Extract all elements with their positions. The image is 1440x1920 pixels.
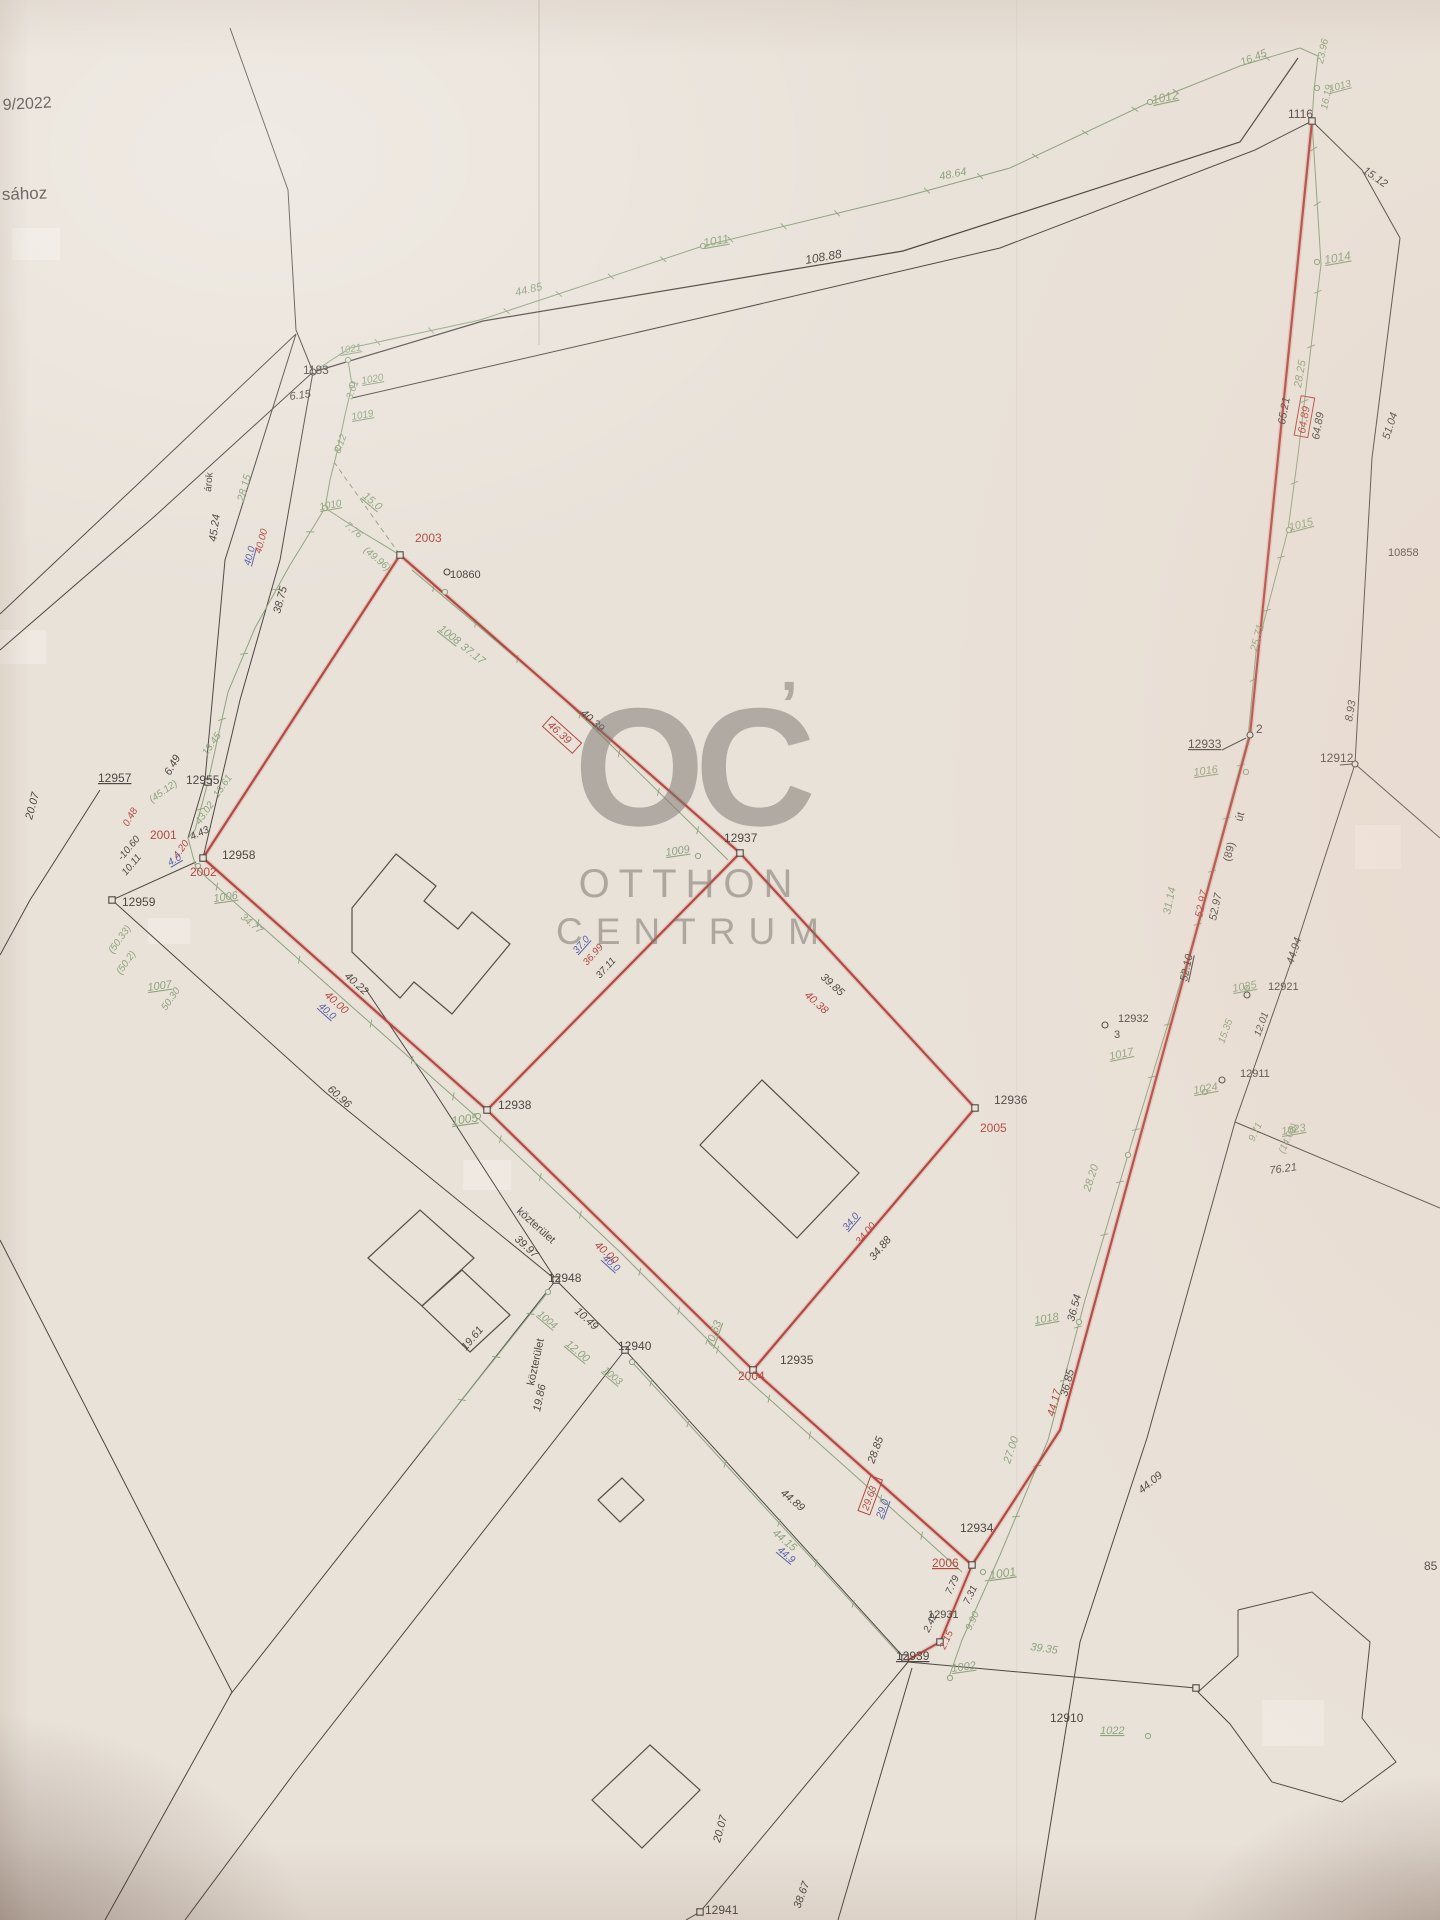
map-label: 3 [1114,1029,1120,1041]
map-label-group: 1022 [1100,1725,1124,1737]
map-label: 1009 [665,844,691,859]
survey-tick [240,653,248,654]
map-label-group: 44.89 [778,1487,807,1514]
map-label-group: 12.01 [1252,1011,1271,1038]
map-label-group: 12910 [1050,1711,1084,1725]
map-label-group: 46.39 [543,716,582,753]
map-label-group: 20.07 [23,790,42,822]
map-label-group: 0.48 [121,806,140,829]
survey-tick [724,1460,726,1468]
map-label-group: (45.12) [147,778,179,805]
map-label: 2003 [415,531,442,545]
map-label-group: 12948 [548,1271,582,1285]
map-label: 1020 [361,372,385,387]
map-label: 45.24 [207,513,223,542]
map-label: 20.07 [23,790,42,822]
map-label: 34.0 [841,1211,862,1233]
map-label-group: 1005 [450,1110,479,1128]
measured-line [188,508,325,838]
map-label-group: 2001 [150,828,177,842]
parcel-boundary-line [295,1350,625,1772]
survey-point-square [397,552,403,558]
map-label-group: 12911 [1240,1068,1270,1080]
map-label: 44.89 [778,1487,807,1514]
map-label-group: 1002 [951,1660,977,1675]
map-label: 37.17 [458,641,488,668]
map-label: 12.01 [1252,1011,1271,1038]
gps-point-circle [980,1569,985,1574]
map-label: 44.09 [1136,1469,1165,1496]
survey-point-square [737,850,743,856]
map-label: 0.48 [121,806,140,829]
map-label-group: 12921 [1268,981,1299,993]
map-label: 1008 [436,623,463,648]
map-label: 51.04 [1380,411,1400,441]
parcel-boundary-line [838,1668,912,1920]
parcel-boundary-line [1080,238,1400,1642]
building-outline [700,1080,859,1238]
map-label-group: 1015 [1288,516,1316,534]
map-label-group: 9/2022 [2,94,52,114]
map-label-group: 2006 [932,1556,959,1570]
map-label: 6.49 [162,753,183,778]
map-label: 52.97 [1207,891,1225,921]
map-label: 1011 [702,232,730,250]
parcel-boundary-line [1235,1122,1440,1208]
map-label: 28.15 [235,472,254,504]
map-label-group: 1003 [600,1365,624,1388]
map-label: 31.14 [1161,886,1178,915]
map-label: 8.12 [332,433,349,455]
map-label: 12955 [186,773,220,787]
redaction-box [463,1160,511,1190]
map-label: 1005 [450,1110,479,1128]
gps-point-circle [695,853,700,858]
map-label: 20.07 [711,1813,730,1845]
survey-tick [527,1313,535,1314]
map-label: 36.54 [1065,1293,1084,1323]
map-label: 12921 [1268,981,1299,993]
parcel-boundary-line [105,1692,232,1920]
gps-point-circle [947,1675,952,1680]
map-label-group: 38.75 [271,584,290,615]
map-label: 2001 [150,828,177,842]
map-label-group: (89) [1221,841,1238,863]
map-label: 2004 [738,1369,765,1383]
redaction-box [12,228,60,260]
map-label: 2005 [980,1121,1007,1135]
map-label: 12957 [98,771,132,785]
map-label: 1014 [1323,248,1352,266]
map-label: (45.12) [147,778,179,805]
map-label: 8.93 [1343,698,1359,722]
map-label-group: 1017 [1108,1046,1135,1063]
map-label-group: 2003 [415,531,442,545]
survey-tick [678,1307,680,1315]
parcel-boundary-line [185,1772,295,1920]
map-label-group: (50.2) [114,949,138,977]
map-label: 12910 [1050,1711,1084,1725]
map-label: 40.00 [253,527,270,554]
map-label: 27.00 [1001,1434,1022,1466]
map-label: 12934 [960,1521,994,1535]
map-label-group: 1009 [665,844,691,859]
map-label: 12935 [780,1353,814,1367]
survey-tick [650,1379,652,1387]
map-label-group: 29.0 [874,1498,891,1521]
map-label-group: 27.00 [1001,1434,1022,1466]
map-label-group: 1016 [1193,764,1220,779]
map-label-group: 4.43 [189,824,212,842]
map-label-group: 19.61 [459,1324,486,1353]
map-label-group: 40.00 [253,527,270,554]
map-label: 13.45 [200,731,224,758]
survey-point-square [972,1105,978,1111]
map-label: 12958 [222,848,256,862]
map-label: 34.88 [867,1233,894,1262]
map-label: 12936 [994,1093,1028,1107]
map-label: 64.89 [1310,411,1327,440]
map-label: 1025 [1231,979,1258,995]
map-label: 19.61 [459,1324,486,1353]
parcel-boundary-line [365,988,556,1280]
map-label: út [1233,811,1247,823]
map-label-group: 34.88 [867,1233,894,1262]
parcel-boundary-line [313,58,1298,372]
map-label-group: 51.04 [1380,411,1400,441]
map-label-group: 34.0 [841,1211,862,1233]
map-label-group: 1021 [339,342,363,357]
survey-point-square [969,1562,975,1568]
map-label-group: 1183 [303,363,329,377]
map-label: 60.96 [325,1083,354,1111]
map-label-group: 12934 [960,1521,994,1535]
redaction-box [1355,825,1401,869]
map-label: 108.88 [804,247,843,267]
map-label: 10858 [1388,547,1419,559]
map-label-group: 39.35 [1030,1641,1060,1657]
map-label-group: 64.89 [1310,411,1327,440]
map-label-group: 28.20 [1081,1162,1102,1194]
map-label: 12948 [548,1271,582,1285]
map-label-group: 1020 [361,372,385,387]
survey-point-square [697,1909,703,1915]
map-label: 12911 [1240,1068,1270,1080]
map-label-group: 12941 [705,1903,739,1917]
map-label-group: 1025 [1231,979,1258,995]
map-label-group: 16.19 [1319,83,1335,110]
map-label: 1017 [1108,1046,1135,1063]
map-label-group: 44.17 [1045,1387,1064,1418]
map-label: 1019 [351,408,375,423]
map-label: 2 [1256,722,1263,736]
map-label: 10860 [450,569,481,581]
map-label-group: 28.85 [865,1434,886,1466]
survey-point-square [109,897,115,903]
map-label-group: út [1233,811,1247,823]
map-label: 15.12 [1360,165,1389,191]
map-label: 1001 [988,1564,1016,1582]
map-label: 1116 [1288,107,1313,121]
survey-tick [977,173,983,179]
map-label-group: 6.15 [289,388,313,403]
survey-tick [492,1356,500,1357]
survey-tick [660,257,666,262]
map-label: 34.77 [238,912,265,937]
survey-point-square [200,855,206,861]
map-label-group: 8.93 [1343,698,1359,722]
map-label-group: 44.09 [1136,1469,1165,1496]
map-label-group: 108.88 [804,247,843,267]
parcel-boundary-line [0,790,100,955]
map-label-group: 12940 [618,1339,652,1353]
map-label-group: 1014 [1323,248,1352,266]
map-label-group: 12959 [122,895,156,909]
parcel-boundary-line [1222,738,1246,750]
map-label-group: 12939 [896,1649,930,1663]
measured-line [412,570,728,860]
map-label-group: 10858 [1388,547,1419,559]
map-label: 28.85 [865,1434,886,1466]
map-label-group: 31.14 [1161,886,1178,915]
subject-parcel-halo [400,555,975,1108]
survey-tick [639,1268,641,1276]
map-label: 38.67 [792,1879,813,1910]
subject-parcel-halo [972,121,1312,1565]
map-label-group: 1018 [1033,1311,1060,1327]
survey-tick [458,1399,466,1400]
map-label: (49.96) [361,545,392,574]
subject-parcel-line [400,555,975,1108]
survey-tick [717,1346,719,1354]
map-label: 44.94 [1284,936,1304,966]
map-label: 1018 [1033,1311,1060,1327]
map-label-group: 2002 [190,865,217,879]
map-label: 12938 [498,1098,532,1112]
map-label: 9.71 [1247,1121,1265,1143]
parcel-boundary-line [1035,1642,1080,1920]
subject-parcel-line [972,121,1312,1565]
subject-parcel-line [487,853,740,1110]
map-label: 85 [1424,1559,1438,1573]
survey-point-circle [1102,1022,1108,1028]
parcel-boundary-line [230,28,313,372]
map-label-group: 12.00 [563,1338,592,1365]
map-label: sához [1,183,47,204]
map-label-group: 1008 [436,623,463,648]
map-label: 29.0 [874,1498,891,1521]
map-label-group: 12912 [1320,751,1354,765]
map-label-group: árok [203,471,216,492]
map-label: 12941 [705,1903,739,1917]
map-label: árok [203,471,216,492]
redaction-box [148,918,190,944]
map-label-group: 15.35 [1216,1017,1235,1045]
map-label: 76.21 [1269,1161,1298,1177]
survey-point-circle [1219,1077,1225,1083]
map-label-group: 39.85 [818,971,847,999]
survey-tick [504,309,510,314]
map-label: 40.38 [802,989,831,1017]
map-label-group: 3 [1114,1029,1120,1041]
map-label: 52.10 [1178,952,1196,982]
map-label: 12932 [1118,1013,1149,1025]
map-label-group: sához [1,183,47,204]
map-label: 2002 [190,865,217,879]
map-label-group: 52.10 [1178,952,1196,982]
map-label-group: 3.01 [344,379,361,401]
map-label-group: 65.21 [1276,396,1293,425]
map-label: 2.15 [937,1629,956,1653]
map-label: közterület [525,1337,547,1386]
map-label-group: 12932 [1118,1013,1149,1025]
building-outline [352,854,510,1014]
map-label-group: 10.49 [572,1305,600,1332]
map-label-group: 1024 [1192,1081,1218,1097]
building-outline [592,1745,700,1848]
map-label: 7.76 [342,520,364,541]
map-label: 1022 [1100,1725,1124,1737]
map-label: 1015 [1288,516,1316,534]
map-label-group: 36.54 [1065,1293,1084,1323]
map-label-group: 2.15 [937,1629,956,1653]
map-label-group: 38.67 [792,1879,813,1910]
map-label: 1024 [1192,1081,1218,1097]
map-label: 65.21 [1276,396,1293,425]
map-label-group: 8.12 [332,433,349,455]
map-label-group: 10860 [450,569,481,581]
redaction-box [1262,1700,1324,1746]
map-label: 12937 [724,831,758,845]
building-outline [368,1210,474,1306]
map-label: 39.35 [1030,1641,1060,1657]
map-label: 1021 [339,342,363,357]
gps-point-circle [1125,1152,1130,1157]
survey-tick [608,274,614,279]
map-label: 12912 [1320,751,1354,765]
map-label: 1002 [951,1660,977,1675]
survey-point-square [484,1107,490,1113]
map-label-group: 1019 [351,408,375,423]
gps-point-circle [442,589,447,594]
redaction-box [0,630,46,664]
map-label-group: 15.0 [360,490,385,514]
map-label: 16.45 [1239,47,1270,69]
map-label-group: 1001 [988,1564,1016,1582]
map-label: 23.96 [1315,37,1331,65]
map-label-group: 2004 [738,1369,765,1383]
survey-point-square [1193,1685,1199,1691]
map-label-group: közterület [525,1337,547,1386]
map-label: 12933 [1188,737,1222,751]
map-label: 3.01 [344,379,361,401]
map-label: 1183 [303,363,329,377]
map-label: (50.2) [114,949,138,977]
gps-point-circle [629,1359,634,1364]
map-label-group: 40.38 [802,989,831,1017]
map-label: 12939 [896,1649,930,1663]
map-label-group: 20.07 [711,1813,730,1845]
map-label-group: 12955 [186,773,220,787]
gps-point-circle [345,357,350,362]
map-label: 1004 [535,1309,559,1332]
map-label: 16.19 [1319,83,1335,110]
map-label: 9.90 [964,1610,982,1633]
map-label-group: 1116 [1288,107,1313,121]
map-label: 25.71 [1248,623,1267,654]
survey-tick [924,188,930,194]
building-outline [598,1478,644,1522]
map-label-group: 12933 [1188,737,1222,751]
gps-point-circle [1243,769,1248,774]
map-label: 2006 [932,1556,959,1570]
map-label-group: 12937 [724,831,758,845]
map-label: 12.00 [563,1338,592,1365]
gps-point-circle [1314,259,1319,264]
gps-point-circle [545,1289,550,1294]
parcel-boundary-line [1198,1592,1396,1802]
map-label: 12940 [618,1339,652,1353]
map-label: 1003 [600,1365,624,1388]
map-label-group: 9.71 [1247,1121,1265,1143]
map-label-group: 12936 [994,1093,1028,1107]
map-label-group: 37.17 [458,641,488,668]
map-label-group: 12935 [780,1353,814,1367]
map-label: 9/2022 [2,94,52,114]
map-label-group: 60.96 [325,1083,354,1111]
map-label: 44.17 [1045,1387,1064,1418]
subject-parcel-line [203,555,400,858]
map-label-group: 1010 [319,498,343,513]
map-label: (89) [1221,841,1238,863]
measured-line [334,462,400,555]
parcel-boundary-line [230,1280,556,1695]
map-label: 38.75 [271,584,290,615]
map-label: 15.35 [1216,1017,1235,1045]
map-label-group: 45.24 [207,513,223,542]
survey-tick [1012,1516,1020,1517]
survey-tick [687,1419,689,1427]
map-label-group: 76.21 [1269,1161,1298,1177]
map-label-group: 1012 [1151,88,1180,107]
map-label: 39.85 [818,971,847,999]
map-label-group: 12938 [498,1098,532,1112]
map-label: 1016 [1193,764,1220,779]
map-label-group: (49.96) [361,545,392,574]
map-label: 15.0 [360,490,385,514]
map-label-group: 52.97 [1207,891,1225,921]
map-label-group: 7.76 [342,520,364,541]
map-label-group: 44.94 [1284,936,1304,966]
map-label-group: 28.15 [235,472,254,504]
measured-line [948,738,1248,1680]
map-label-group: 9.90 [964,1610,982,1633]
map-label: 4.43 [189,824,212,842]
map-label: 1010 [319,498,343,513]
map-label-group: 15.12 [1360,165,1389,191]
map-label-group: 2005 [980,1121,1007,1135]
map-label-group: 16.45 [1239,47,1270,69]
parcel-boundary-line [0,1240,232,1692]
survey-map-canvas: 9/2022sához44.851011108.8848.64101216.45… [0,0,1440,1920]
survey-tick [556,291,562,296]
map-label-group: 23.96 [1315,37,1331,65]
map-label: 6.15 [289,388,313,403]
map-label: 28.20 [1081,1162,1102,1194]
map-label-group: 12958 [222,848,256,862]
map-label: 44.85 [514,281,544,299]
gps-point-circle [1314,85,1319,90]
